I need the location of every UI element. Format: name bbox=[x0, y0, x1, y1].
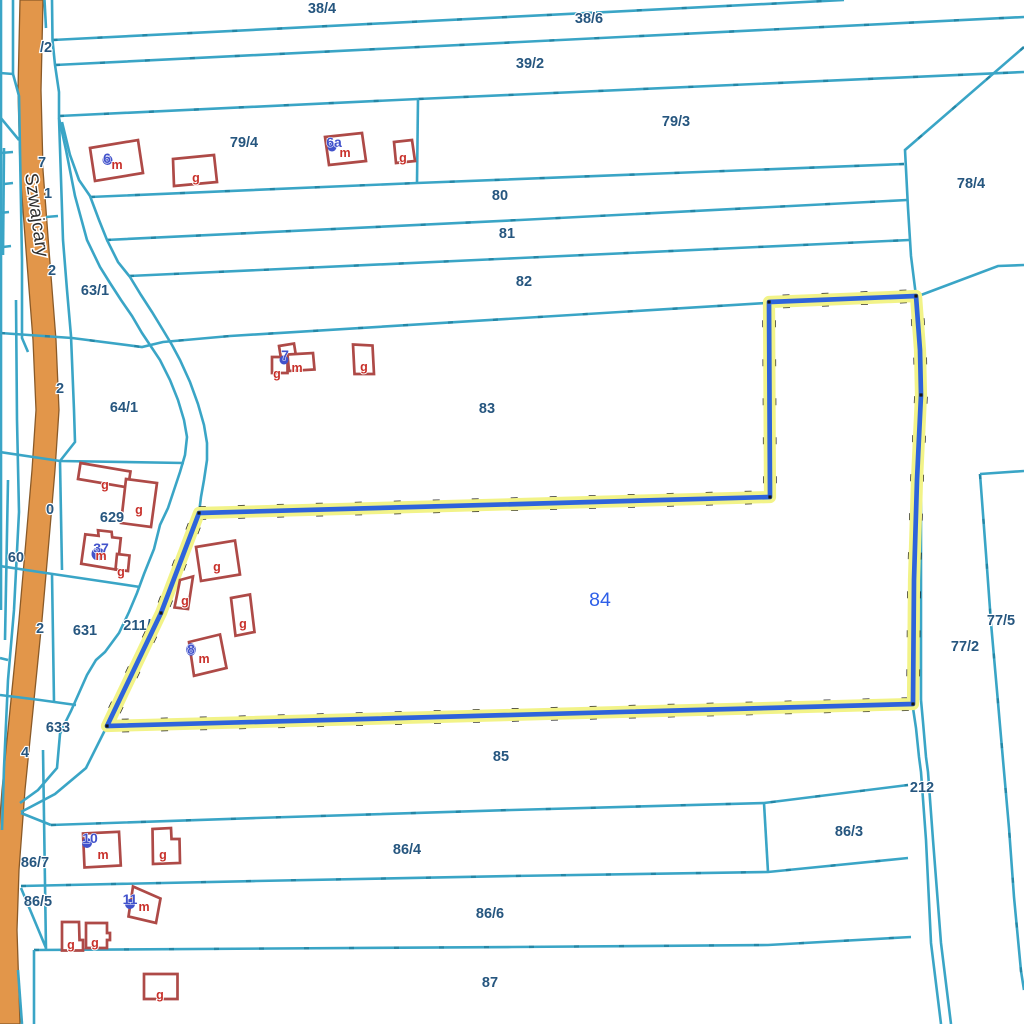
svg-text:80: 80 bbox=[492, 188, 508, 204]
svg-text:81: 81 bbox=[499, 226, 515, 242]
svg-text:84: 84 bbox=[589, 589, 611, 611]
svg-text:m: m bbox=[111, 158, 122, 172]
svg-text:2: 2 bbox=[56, 381, 64, 397]
svg-text:g: g bbox=[181, 594, 189, 608]
svg-text:86/5: 86/5 bbox=[24, 894, 52, 910]
svg-text:7: 7 bbox=[38, 155, 46, 171]
svg-text:g: g bbox=[399, 151, 407, 165]
svg-text:86/6: 86/6 bbox=[476, 906, 504, 922]
svg-text:64/1: 64/1 bbox=[110, 400, 138, 416]
svg-text:85: 85 bbox=[493, 749, 509, 765]
svg-text:4: 4 bbox=[21, 745, 29, 761]
svg-text:g: g bbox=[213, 560, 221, 574]
svg-text:82: 82 bbox=[516, 274, 532, 290]
svg-text:m: m bbox=[339, 146, 350, 160]
svg-text:2: 2 bbox=[36, 621, 44, 637]
svg-text:63/1: 63/1 bbox=[81, 283, 109, 299]
svg-text:78/4: 78/4 bbox=[957, 176, 985, 192]
svg-text:1: 1 bbox=[44, 186, 52, 202]
svg-text:11: 11 bbox=[123, 891, 138, 907]
svg-text:39/2: 39/2 bbox=[516, 56, 544, 72]
svg-text:0: 0 bbox=[46, 502, 54, 518]
svg-text:77/5: 77/5 bbox=[987, 613, 1015, 629]
svg-text:8: 8 bbox=[187, 641, 195, 657]
svg-text:212: 212 bbox=[910, 780, 934, 796]
svg-text:86/3: 86/3 bbox=[835, 824, 863, 840]
svg-text:87: 87 bbox=[482, 975, 498, 991]
svg-text:m: m bbox=[138, 900, 149, 914]
svg-text:10: 10 bbox=[82, 830, 98, 846]
svg-text:m: m bbox=[95, 549, 106, 563]
svg-text:g: g bbox=[239, 617, 247, 631]
svg-text:g: g bbox=[117, 565, 125, 579]
svg-text:m: m bbox=[198, 652, 209, 666]
svg-text:633: 633 bbox=[46, 720, 70, 736]
svg-text:7: 7 bbox=[281, 347, 289, 363]
svg-text:g: g bbox=[159, 848, 167, 862]
svg-text:g: g bbox=[360, 360, 368, 374]
svg-text:2: 2 bbox=[48, 263, 56, 279]
svg-text:g: g bbox=[101, 478, 109, 492]
svg-text:6: 6 bbox=[103, 150, 111, 166]
svg-text:38/4: 38/4 bbox=[308, 1, 336, 17]
svg-text:77/2: 77/2 bbox=[951, 639, 979, 655]
svg-text:79/3: 79/3 bbox=[662, 114, 690, 130]
svg-text:g: g bbox=[67, 938, 75, 952]
svg-text:631: 631 bbox=[73, 623, 97, 639]
svg-text:m: m bbox=[291, 361, 302, 375]
svg-text:g: g bbox=[91, 936, 99, 950]
svg-text:m: m bbox=[97, 848, 108, 862]
svg-text:/2: /2 bbox=[40, 40, 52, 56]
svg-text:86/4: 86/4 bbox=[393, 842, 421, 858]
svg-text:79/4: 79/4 bbox=[230, 135, 258, 151]
svg-text:629: 629 bbox=[100, 510, 124, 526]
svg-text:60: 60 bbox=[8, 550, 24, 566]
svg-text:83: 83 bbox=[479, 401, 495, 417]
svg-text:86/7: 86/7 bbox=[21, 855, 49, 871]
svg-text:g: g bbox=[156, 988, 164, 1002]
svg-text:38/6: 38/6 bbox=[575, 11, 603, 27]
svg-text:g: g bbox=[273, 367, 281, 381]
svg-text:g: g bbox=[192, 171, 200, 185]
svg-text:g: g bbox=[135, 503, 143, 517]
